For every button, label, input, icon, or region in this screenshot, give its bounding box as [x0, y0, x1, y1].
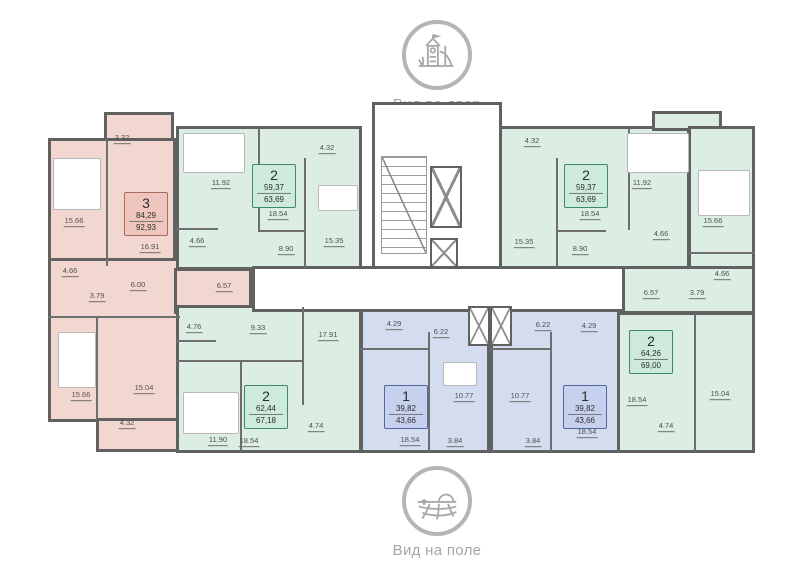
room-area-label: 3.79 — [689, 289, 706, 299]
bed-furniture — [58, 332, 96, 388]
apartment-rooms-count: 2 — [247, 388, 285, 404]
field-icon — [402, 466, 472, 536]
room-area-label: 11.92 — [632, 179, 652, 189]
room-area-label: 15.35 — [324, 237, 345, 247]
room-area-label: 15.04 — [710, 390, 731, 400]
wall-divider — [48, 316, 180, 318]
apartment-badge-2-room-top-right[interactable]: 259,3763,69 — [564, 164, 608, 208]
wall-divider — [176, 228, 218, 230]
room-area-label: 6.22 — [433, 328, 450, 338]
wall-divider — [556, 230, 606, 232]
room-area-label: 18.54 — [268, 210, 289, 220]
room-area-label: 4.66 — [62, 267, 79, 277]
apartment-rooms-count: 2 — [255, 167, 293, 183]
room-area-label: 4.32 — [119, 419, 136, 429]
apartment-area-living: 59,37 — [257, 183, 291, 194]
room-area-label: 11.92 — [211, 179, 231, 189]
bed-furniture — [183, 392, 239, 434]
room-area-label: 4.29 — [386, 320, 403, 330]
room-area-label: 10.77 — [510, 392, 531, 402]
room-area-label: 4.74 — [308, 422, 325, 432]
apartment-badge-3-room-left[interactable]: 384,2992,93 — [124, 192, 168, 236]
staircase — [381, 156, 427, 254]
room-area-label: 6.57 — [216, 282, 233, 292]
room-area-label: 11.90 — [208, 436, 228, 446]
room-area-label: 15.35 — [514, 238, 535, 248]
apartment-badge-1-room-right[interactable]: 139,8243,66 — [563, 385, 607, 429]
room-area-label: 3.84 — [525, 437, 542, 447]
room-area-label: 18.54 — [627, 396, 648, 406]
apartment-area-total: 63,69 — [255, 194, 293, 204]
apartment-badge-1-room-left[interactable]: 139,8243,66 — [384, 385, 428, 429]
wall-divider — [360, 348, 430, 350]
view-top: Вид во двор — [367, 20, 507, 113]
apartment-rooms-count: 1 — [387, 388, 425, 404]
room-area-label: 4.32 — [524, 137, 541, 147]
apartment-rooms-count: 2 — [632, 333, 670, 349]
room-area-label: 4.66 — [714, 270, 731, 280]
wall-divider — [258, 230, 306, 232]
room-area-label: 3.32 — [114, 134, 131, 144]
room-area-label: 8.90 — [572, 245, 589, 255]
wall-divider — [106, 140, 108, 266]
apartment-area-total: 63,69 — [567, 194, 605, 204]
apartment-area-living: 59,37 — [569, 183, 603, 194]
utility-shaft — [468, 306, 490, 346]
room-area-label: 18.54 — [400, 436, 421, 446]
bed-furniture — [53, 158, 101, 210]
apartment-area-living: 39,82 — [568, 404, 602, 415]
apartment-badge-2-room-bottom-left[interactable]: 262,4467,18 — [244, 385, 288, 429]
apartment-area-living: 39,82 — [389, 404, 423, 415]
room-area-label: 4.74 — [658, 422, 675, 432]
playground-icon — [402, 20, 472, 90]
table-furniture — [443, 362, 477, 386]
apartment-area-total: 67,18 — [247, 415, 285, 425]
apartment-region-3-room-left-balcony-bottom[interactable] — [96, 418, 180, 452]
elevator-shaft — [430, 166, 462, 228]
wall-divider — [304, 158, 306, 268]
room-area-label: 18.54 — [577, 428, 598, 438]
room-area-label: 6.57 — [643, 289, 660, 299]
room-area-label: 15.66 — [703, 217, 724, 227]
room-area-label: 15.66 — [71, 391, 92, 401]
room-area-label: 17.91 — [318, 331, 339, 341]
floor-plan-page: Вид во двор Вид на поле — [0, 0, 800, 566]
table-furniture — [318, 185, 358, 211]
apartment-area-living: 64,26 — [634, 349, 668, 360]
room-area-label: 4.29 — [581, 322, 598, 332]
wall-divider — [176, 340, 216, 342]
apartment-area-total: 69,00 — [632, 360, 670, 370]
room-area-label: 4.32 — [319, 144, 336, 154]
apartment-rooms-count: 3 — [127, 195, 165, 211]
room-area-label: 10.77 — [454, 392, 475, 402]
room-area-label: 15.66 — [64, 217, 85, 227]
wall-divider — [302, 307, 304, 405]
public-corridor — [252, 266, 625, 312]
apartment-area-living: 62,44 — [249, 404, 283, 415]
bed-furniture — [627, 133, 689, 173]
room-area-label: 9.33 — [250, 324, 267, 334]
elevator-shaft-small — [430, 238, 458, 268]
view-bottom-label: Вид на поле — [367, 542, 507, 559]
utility-shaft — [490, 306, 512, 346]
wall-divider — [490, 348, 552, 350]
apartment-area-living: 84,29 — [129, 211, 163, 222]
room-area-label: 4.66 — [189, 237, 206, 247]
wall-divider — [688, 252, 755, 254]
room-area-label: 16.91 — [140, 243, 161, 253]
wall-divider — [556, 158, 558, 268]
wall-divider — [96, 316, 98, 420]
apartment-area-total: 92,93 — [127, 222, 165, 232]
room-area-label: 4.76 — [186, 323, 203, 333]
room-area-label: 18.54 — [580, 210, 601, 220]
room-area-label: 4.66 — [653, 230, 670, 240]
room-area-label: 6.22 — [535, 321, 552, 331]
room-area-label: 15.04 — [134, 384, 155, 394]
room-area-label: 3.79 — [89, 292, 106, 302]
room-area-label: 6.00 — [130, 281, 147, 291]
apartment-rooms-count: 1 — [566, 388, 604, 404]
apartment-rooms-count: 2 — [567, 167, 605, 183]
bed-furniture — [183, 133, 245, 173]
apartment-badge-2-room-right[interactable]: 264,2669,00 — [629, 330, 673, 374]
room-area-label: 8.90 — [278, 245, 295, 255]
bed-furniture — [698, 170, 750, 216]
apartment-badge-2-room-top-left[interactable]: 259,3763,69 — [252, 164, 296, 208]
apartment-area-total: 43,66 — [566, 415, 604, 425]
wall-divider — [694, 314, 696, 451]
room-area-label: 18.54 — [239, 437, 260, 447]
view-bottom: Вид на поле — [367, 466, 507, 559]
apartment-area-total: 43,66 — [387, 415, 425, 425]
room-area-label: 3.84 — [447, 437, 464, 447]
